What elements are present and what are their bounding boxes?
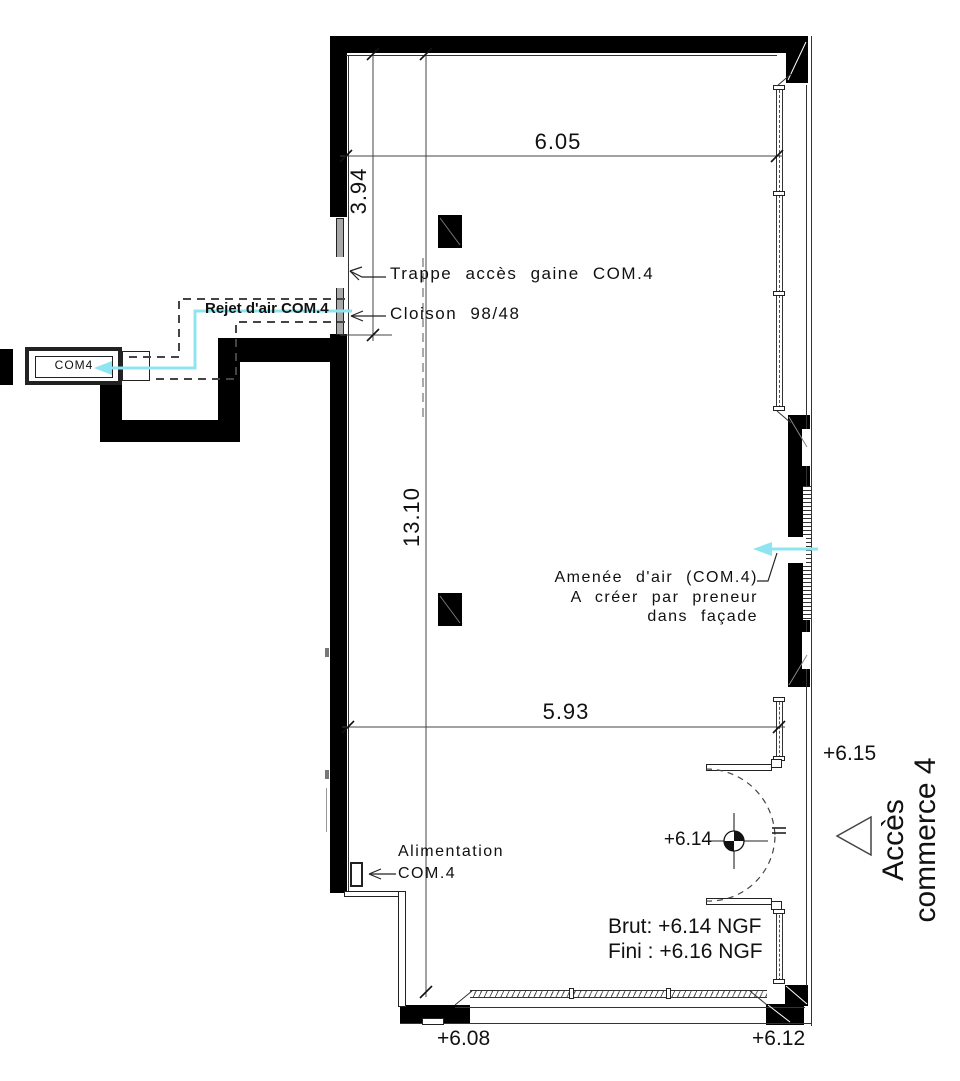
dim-top-width: 6.05 xyxy=(500,129,616,155)
com4-grille-label: COM4 xyxy=(35,358,113,372)
survey-point-symbol xyxy=(706,813,768,869)
dim-upper-left-height: 3.94 xyxy=(346,168,372,215)
alimentation-label-line2: COM.4 xyxy=(398,865,456,883)
access-commerce-label: Accès commerce 4 xyxy=(878,757,942,922)
amenee-air-label-line1: Amenée d'air (COM.4) xyxy=(554,569,758,587)
level-door-point: +6.14 xyxy=(662,829,712,851)
access-line2: commerce 4 xyxy=(910,757,942,922)
airflow-arrowhead-intake xyxy=(753,542,772,556)
plan-linework-overlay xyxy=(0,0,960,1081)
dim-total-height: 13.10 xyxy=(399,487,425,547)
amenee-air-label-line3: dans façade xyxy=(647,608,758,626)
airflow-lines xyxy=(110,311,818,549)
amenee-air-label-line2: A créer par preneur xyxy=(571,589,758,607)
level-outside-entrance: +6.15 xyxy=(823,742,876,766)
floor-plan-canvas: Trappe accès gaine COM.4 Cloison 98/48 R… xyxy=(0,0,960,1081)
trappe-label: Trappe accès gaine COM.4 xyxy=(390,264,654,284)
level-bottom-right: +6.12 xyxy=(752,1027,805,1051)
access-direction-triangle xyxy=(837,817,871,855)
cloison-label: Cloison 98/48 xyxy=(390,304,520,324)
level-fini-label: Fini : +6.16 NGF xyxy=(608,940,763,964)
level-brut-label: Brut: +6.14 NGF xyxy=(608,915,761,939)
dim-lower-width: 5.93 xyxy=(508,699,624,725)
corner-diagonals xyxy=(440,42,807,1022)
rejet-air-label: Rejet d'air COM.4 xyxy=(205,300,329,317)
level-bottom-left: +6.08 xyxy=(437,1027,490,1051)
access-line1: Accès xyxy=(878,757,910,922)
alimentation-label-line1: Alimentation xyxy=(398,843,504,861)
